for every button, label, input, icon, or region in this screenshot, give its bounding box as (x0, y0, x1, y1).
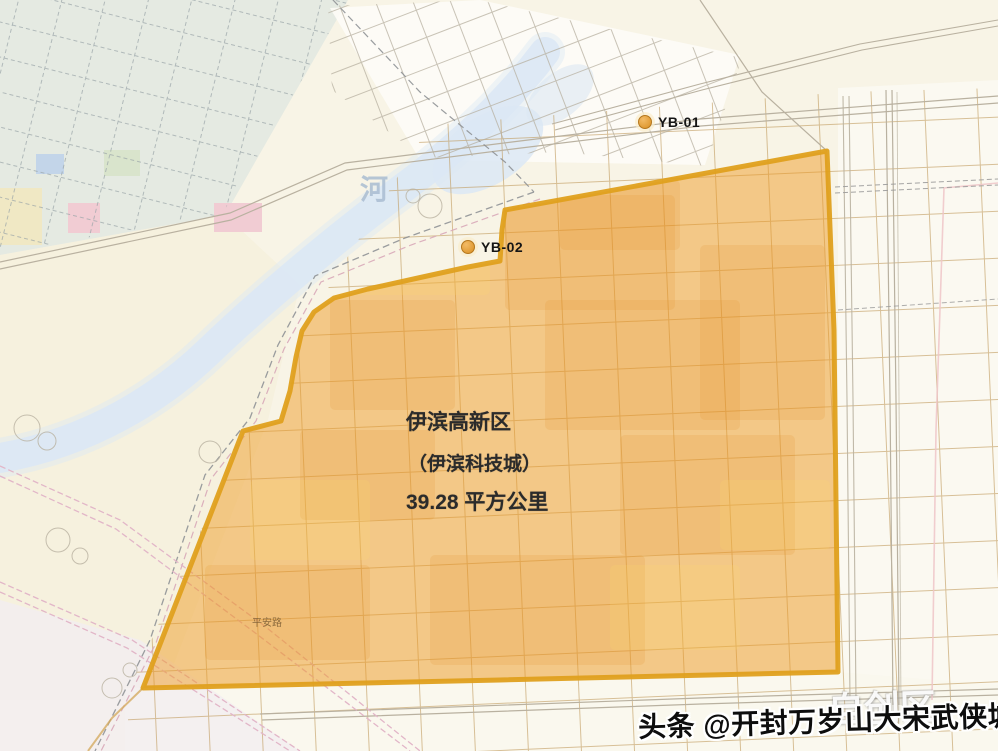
marker-yb-01: YB-01 (638, 114, 700, 130)
zone-area-value: 39.28 平方公里 (406, 486, 548, 516)
toutiao-watermark: 头条 @开封万岁山大宋武侠城 (637, 694, 998, 746)
road-name-label: 平安路 (252, 614, 282, 629)
map-screenshot: 河 YB-01 YB-02 伊滨高新区 （伊滨科技城） 39.28 平方公里 平… (0, 0, 998, 751)
yb-01-dot-icon (638, 115, 652, 129)
label-overlay: 河 YB-01 YB-02 伊滨高新区 （伊滨科技城） 39.28 平方公里 平… (0, 0, 998, 751)
yb-01-label: YB-01 (658, 114, 700, 130)
yb-02-label: YB-02 (481, 239, 523, 255)
zone-name: 伊滨高新区 (406, 406, 548, 436)
zone-alt-name: （伊滨科技城） (408, 449, 548, 476)
marker-yb-02: YB-02 (461, 239, 523, 255)
yb-02-dot-icon (461, 240, 475, 254)
river-name-label: 河 (360, 168, 390, 208)
zone-area-label: 伊滨高新区 （伊滨科技城） 39.28 平方公里 (406, 406, 548, 516)
